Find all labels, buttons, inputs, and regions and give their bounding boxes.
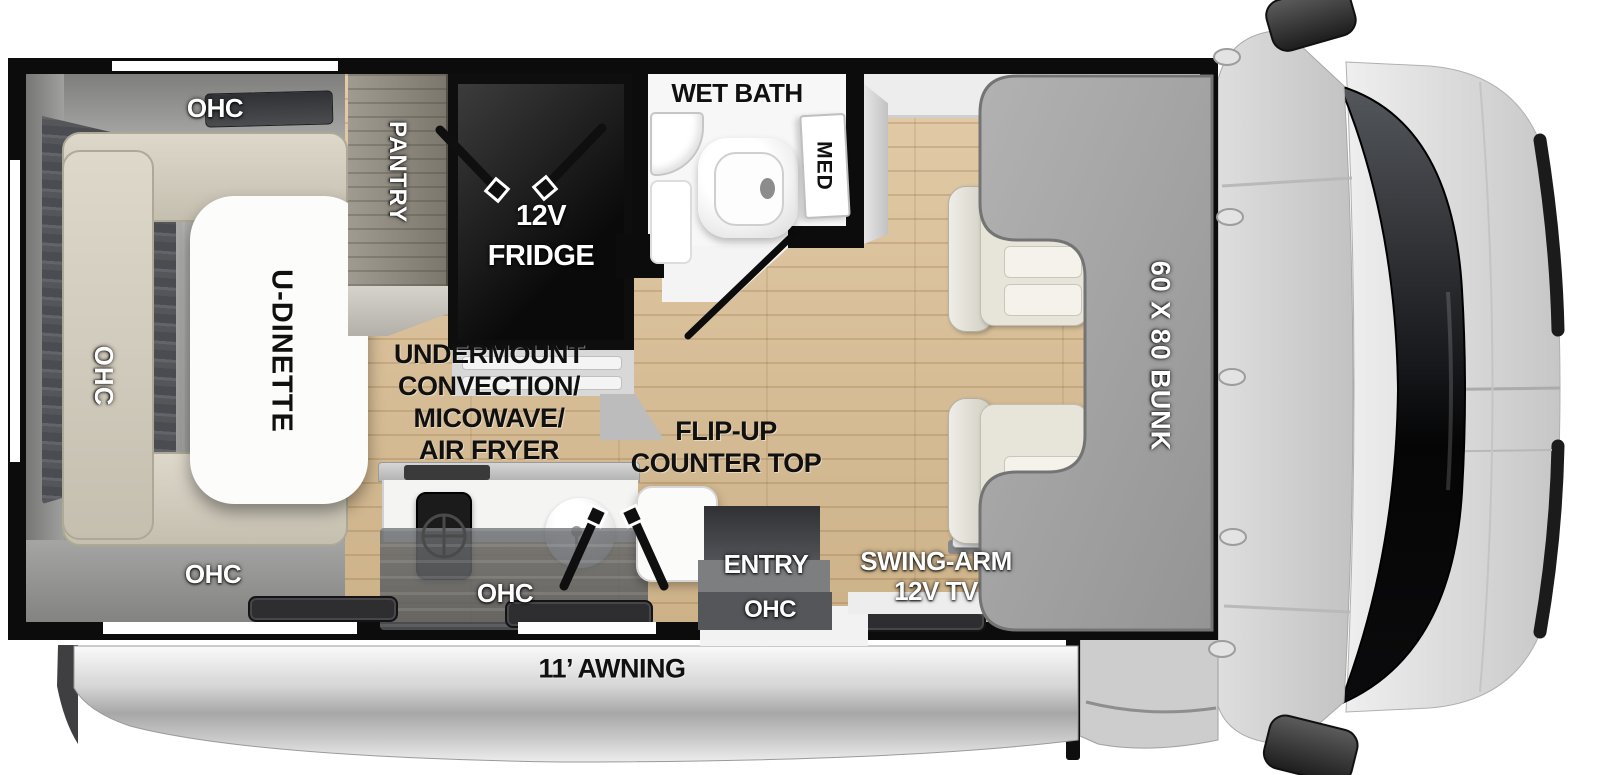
cab-door-seam	[1086, 702, 1216, 712]
toilet-flush-button	[760, 178, 775, 199]
label-appliance: UNDERMOUNT CONVECTION/ MICOWAVE/ AIR FRY…	[394, 338, 584, 466]
label-pantry: PANTRY	[385, 121, 409, 223]
label-tv: SWING-ARM 12V TV	[860, 546, 1011, 606]
hood-seam-2	[1400, 450, 1552, 452]
label-ohc-dinette-top: OHC	[187, 95, 243, 121]
bath-wall-corner	[788, 226, 864, 248]
label-wet-bath: WET BATH	[671, 80, 802, 106]
label-flip-up-counter: FLIP-UP COUNTER TOP	[631, 415, 822, 479]
side-mirror-bottom	[1261, 712, 1361, 775]
passenger-seat-cushion-2	[1004, 284, 1082, 316]
windshield	[1340, 86, 1465, 704]
shower-pan	[650, 180, 692, 264]
label-u-dinette: U-DINETTE	[267, 269, 296, 433]
window-left	[10, 160, 20, 462]
cab-door-panel	[1080, 622, 1218, 748]
grille-edge-top	[1540, 140, 1558, 330]
side-mirror-top	[1262, 0, 1359, 55]
window-bottom-kitchen	[518, 622, 656, 634]
passenger-seat-cushion-1	[1004, 246, 1082, 278]
cooktop-cover	[404, 465, 490, 480]
label-ohc-dinette-bottom: OHC	[185, 561, 241, 587]
label-med: MED	[814, 141, 835, 191]
label-ohc-dinette-left: OHC	[91, 346, 117, 407]
awning-end-cap	[57, 645, 78, 744]
driver-seat-cushion-1	[1004, 456, 1082, 488]
bath-wall-left	[632, 74, 648, 234]
hood-cut-arc	[1480, 82, 1493, 692]
bath-wall-face	[864, 84, 888, 244]
rv-floorplan: OHC OHC OHC U-DINETTE PANTRY 12V FRIDGE …	[0, 0, 1600, 775]
driver-seat-cushion-2	[1004, 494, 1082, 526]
storage-tray-dinette	[248, 596, 398, 622]
window-top	[112, 61, 338, 71]
windshield-highlight	[1448, 292, 1451, 490]
cab-front-fascia	[1346, 62, 1560, 712]
label-ohc-kitchen: OHC	[477, 580, 533, 606]
label-ohc-entry: OHC	[744, 598, 796, 622]
cab-hood-panel	[1218, 30, 1353, 744]
label-bunk: 60 X 80 BUNK	[1147, 261, 1174, 452]
hood-seam	[1402, 388, 1560, 390]
label-awning: 11’ AWNING	[538, 656, 685, 683]
hood-panel-seam-bottom	[1224, 606, 1350, 612]
hood-panel-seam-top	[1222, 178, 1352, 186]
cab-bulkhead	[862, 74, 1200, 118]
label-fridge: 12V FRIDGE	[488, 196, 595, 276]
window-bottom-left	[103, 622, 357, 634]
label-entry: ENTRY	[724, 551, 809, 577]
grille-edge-bottom	[1540, 446, 1558, 632]
